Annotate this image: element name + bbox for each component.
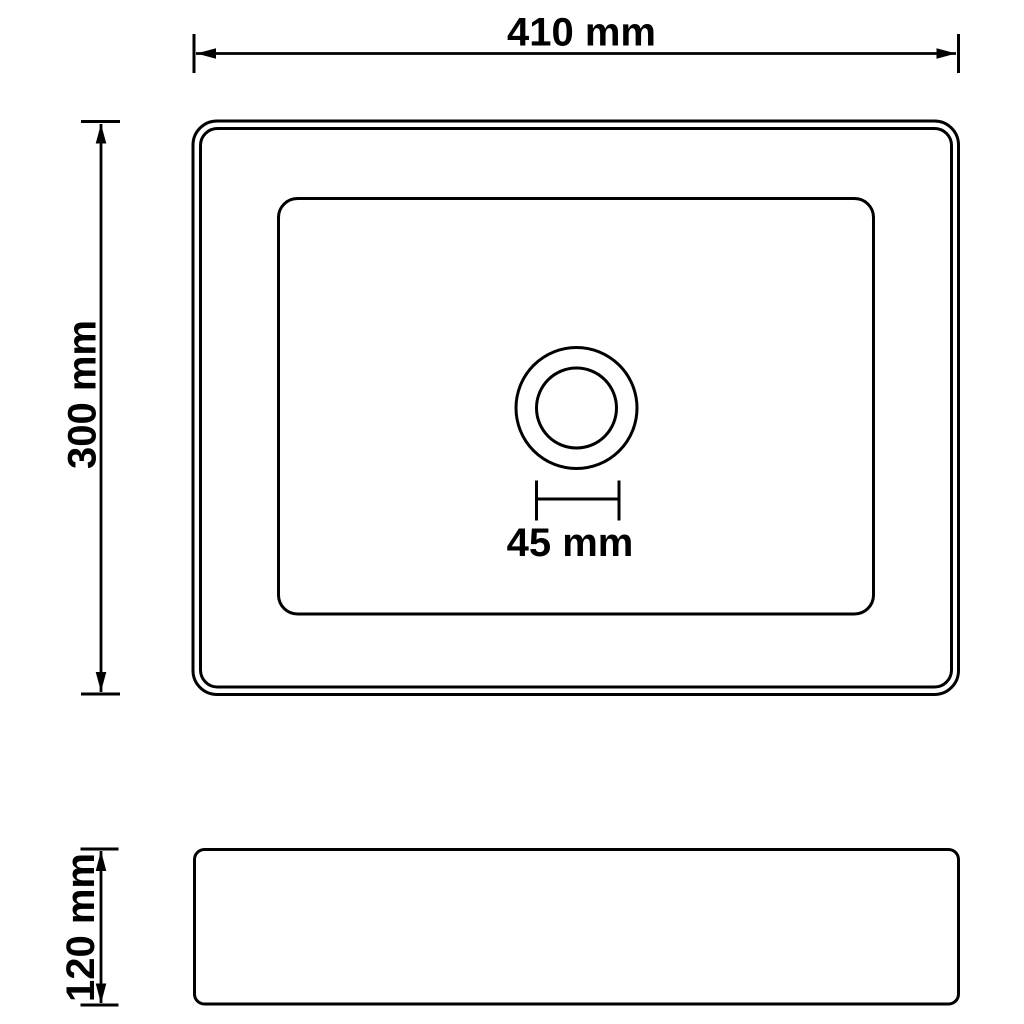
svg-text:300 mm: 300 mm [61,320,105,469]
svg-text:410 mm: 410 mm [507,11,656,55]
svg-text:45 mm: 45 mm [507,521,634,565]
svg-text:120 mm: 120 mm [59,853,103,1002]
